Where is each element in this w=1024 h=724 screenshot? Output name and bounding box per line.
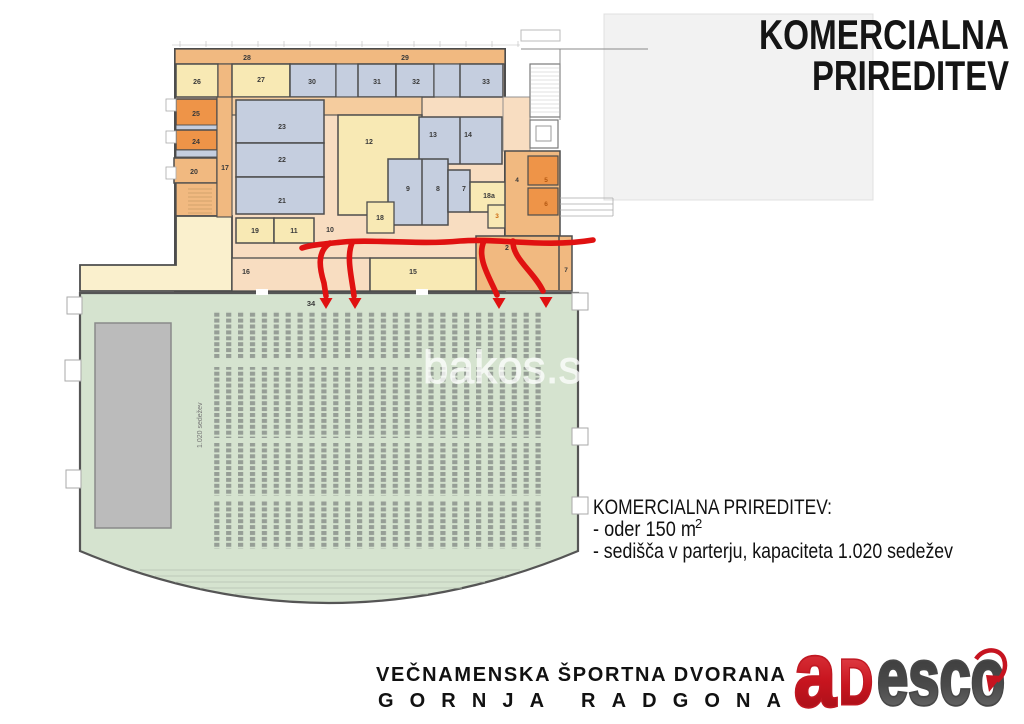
svg-text:10: 10 <box>326 227 334 234</box>
svg-text:16: 16 <box>242 269 250 276</box>
svg-text:6: 6 <box>544 201 548 208</box>
svg-text:2: 2 <box>505 245 509 252</box>
svg-text:1.020 sedežev: 1.020 sedežev <box>197 402 204 448</box>
svg-text:21: 21 <box>278 198 286 205</box>
svg-text:4: 4 <box>515 177 519 184</box>
svg-text:17: 17 <box>221 165 229 172</box>
svg-text:- oder 150 m: - oder 150 m <box>593 518 696 541</box>
svg-text:3: 3 <box>495 213 499 220</box>
svg-text:32: 32 <box>412 79 420 86</box>
svg-text:esco: esco <box>877 632 1005 721</box>
svg-text:9: 9 <box>406 186 410 193</box>
svg-text:18a: 18a <box>483 193 495 200</box>
svg-text:23: 23 <box>278 124 286 131</box>
svg-text:30: 30 <box>308 79 316 86</box>
svg-text:7: 7 <box>462 186 466 193</box>
svg-text:25: 25 <box>192 111 200 118</box>
svg-text:7: 7 <box>564 267 568 274</box>
svg-text:28: 28 <box>243 55 251 62</box>
svg-text:24: 24 <box>192 139 200 146</box>
svg-text:34: 34 <box>307 299 316 308</box>
svg-text:14: 14 <box>464 132 472 139</box>
svg-text:5: 5 <box>544 177 548 184</box>
svg-text:31: 31 <box>373 79 381 86</box>
svg-text:bakos.s: bakos.s <box>423 341 582 393</box>
svg-text:22: 22 <box>278 157 286 164</box>
svg-text:VEČNAMENSKA ŠPORTNA DVORANA: VEČNAMENSKA ŠPORTNA DVORANA <box>376 662 785 686</box>
svg-text:20: 20 <box>190 169 198 176</box>
svg-text:15: 15 <box>409 269 417 276</box>
svg-text:26: 26 <box>193 79 201 86</box>
svg-text:PRIREDITEV: PRIREDITEV <box>812 52 1009 99</box>
svg-text:8: 8 <box>436 186 440 193</box>
svg-text:29: 29 <box>401 55 409 62</box>
svg-text:11: 11 <box>290 228 298 235</box>
svg-text:33: 33 <box>482 79 490 86</box>
svg-text:KOMERCIALNA: KOMERCIALNA <box>759 11 1009 58</box>
svg-text:18: 18 <box>376 215 384 222</box>
svg-text:19: 19 <box>251 228 259 235</box>
svg-text:12: 12 <box>365 139 373 146</box>
svg-text:27: 27 <box>257 77 265 84</box>
svg-text:a: a <box>794 624 837 724</box>
svg-text:- sedišča v parterju, kapacite: - sedišča v parterju, kapaciteta 1.020 s… <box>593 540 953 563</box>
svg-text:D: D <box>839 646 873 718</box>
svg-text:KOMERCIALNA PRIREDITEV:: KOMERCIALNA PRIREDITEV: <box>593 496 832 519</box>
svg-text:13: 13 <box>429 132 437 139</box>
svg-text:2: 2 <box>695 516 702 531</box>
